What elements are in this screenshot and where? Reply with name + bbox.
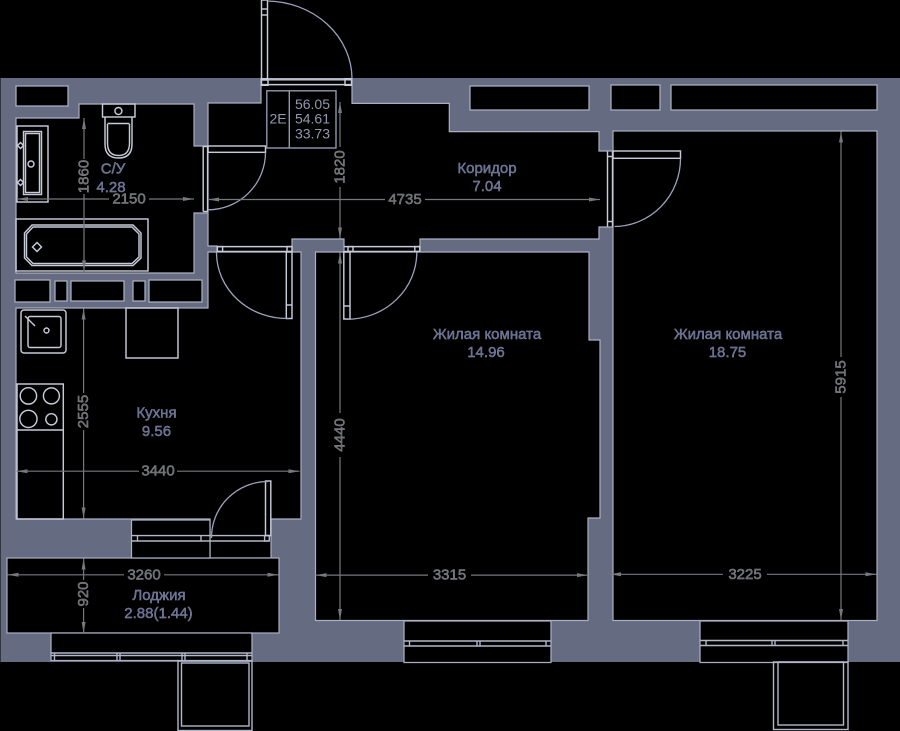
svg-text:Жилая комната: Жилая комната <box>674 326 783 343</box>
svg-text:7.04: 7.04 <box>472 178 501 195</box>
svg-text:1860: 1860 <box>76 160 93 193</box>
svg-text:Кухня: Кухня <box>136 405 176 422</box>
svg-text:3225: 3225 <box>728 566 761 583</box>
svg-text:Коридор: Коридор <box>457 160 516 177</box>
svg-text:4440: 4440 <box>332 418 349 451</box>
svg-text:2Е: 2Е <box>269 111 286 127</box>
svg-text:33.73: 33.73 <box>295 125 330 141</box>
svg-text:4735: 4735 <box>388 191 421 208</box>
svg-text:Лоджия: Лоджия <box>132 587 185 604</box>
svg-text:920: 920 <box>75 581 92 606</box>
svg-text:1820: 1820 <box>332 150 349 183</box>
svg-text:2555: 2555 <box>75 395 92 428</box>
svg-text:18.75: 18.75 <box>709 344 747 361</box>
svg-text:2.88(1.44): 2.88(1.44) <box>124 605 192 622</box>
svg-text:9.56: 9.56 <box>142 423 171 440</box>
svg-text:14.96: 14.96 <box>467 344 505 361</box>
svg-text:3440: 3440 <box>141 463 174 480</box>
svg-text:3315: 3315 <box>433 567 466 584</box>
svg-text:54.61: 54.61 <box>295 111 330 127</box>
svg-text:5915: 5915 <box>833 360 850 393</box>
svg-text:56.05: 56.05 <box>295 96 330 112</box>
svg-text:Жилая комната: Жилая комната <box>433 326 542 343</box>
svg-text:3260: 3260 <box>127 566 160 583</box>
svg-text:С/У: С/У <box>101 161 126 178</box>
svg-text:4.28: 4.28 <box>96 179 125 196</box>
